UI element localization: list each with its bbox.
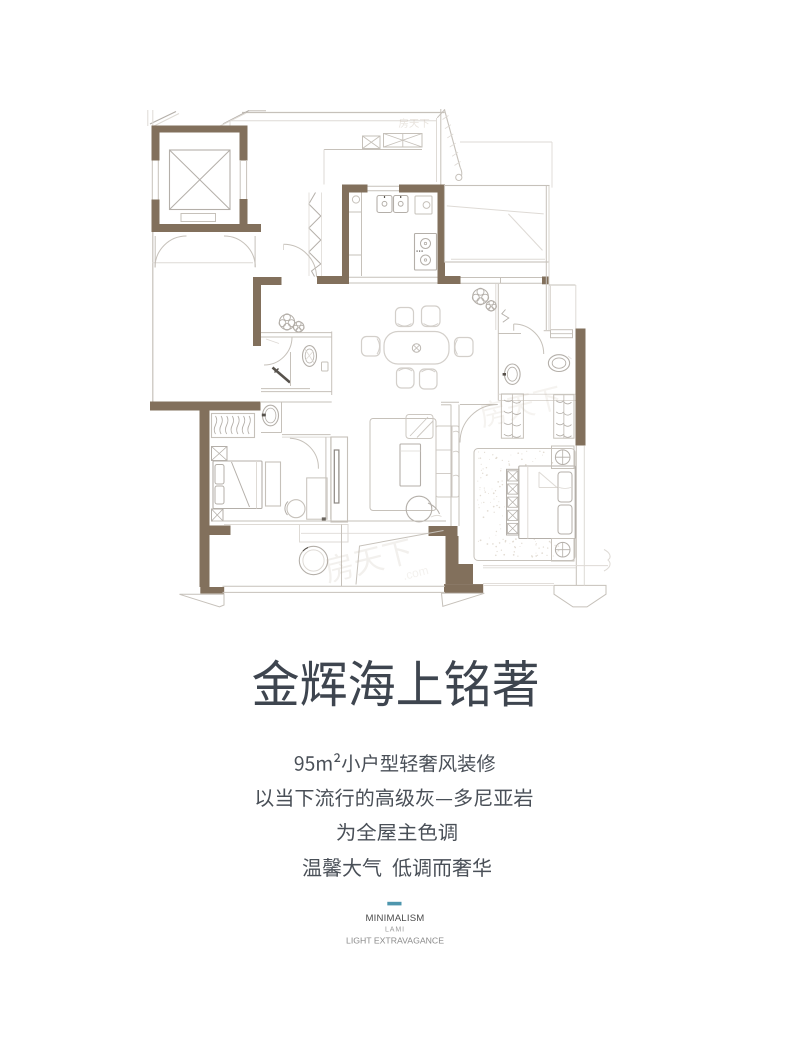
svg-text:LAMI: LAMI <box>385 927 405 934</box>
svg-text:MINIMALISM: MINIMALISM <box>365 913 424 924</box>
svg-text:LIGHT EXTRAVAGANCE: LIGHT EXTRAVAGANCE <box>346 936 444 946</box>
